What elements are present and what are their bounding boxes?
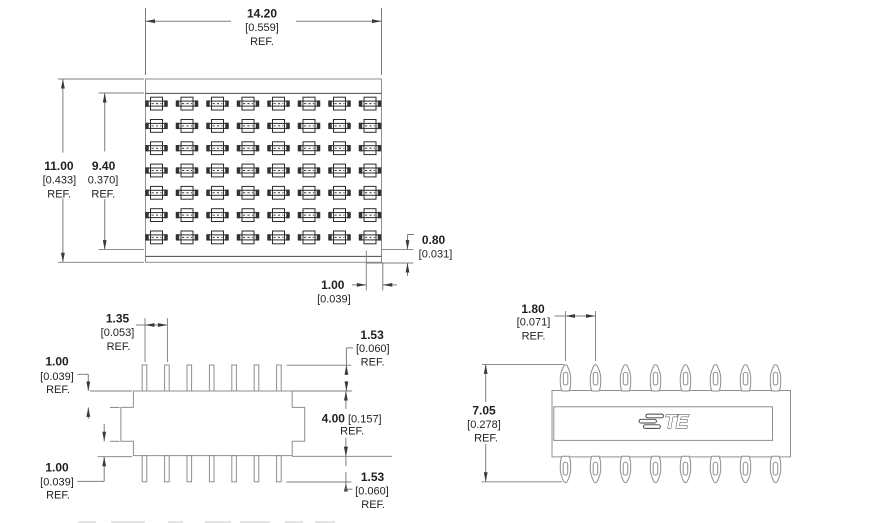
svg-text:[0.278]: [0.278] (467, 419, 501, 431)
svg-text:1.00: 1.00 (321, 278, 345, 292)
svg-text:1.00: 1.00 (45, 355, 69, 369)
svg-text:1.53: 1.53 (360, 328, 384, 342)
svg-text:[0.060]: [0.060] (356, 343, 390, 355)
svg-text:9.40: 9.40 (92, 159, 116, 173)
svg-text:TE: TE (665, 412, 690, 433)
svg-text:REF.: REF. (107, 341, 131, 353)
svg-text:[0.039]: [0.039] (40, 371, 74, 383)
svg-text:[0.031]: [0.031] (419, 248, 453, 260)
svg-text:REF.: REF. (340, 426, 364, 438)
svg-text:4.00 [0.157]: 4.00 [0.157] (322, 411, 382, 425)
svg-text:1.53: 1.53 (361, 470, 385, 484)
svg-text:[0.433]: [0.433] (43, 175, 77, 187)
svg-text:1.00: 1.00 (45, 461, 69, 475)
svg-text:REF.: REF. (46, 384, 70, 396)
svg-text:[0.039]: [0.039] (317, 293, 351, 305)
svg-text:14.20: 14.20 (247, 7, 277, 21)
svg-text:REF.: REF. (361, 499, 385, 511)
svg-text:REF.: REF. (250, 36, 274, 48)
svg-text:REF.: REF. (522, 331, 546, 343)
svg-text:0.370]: 0.370] (88, 175, 119, 187)
svg-text:0.80: 0.80 (422, 233, 446, 247)
svg-text:1.35: 1.35 (106, 312, 130, 326)
svg-text:[0.039]: [0.039] (40, 476, 74, 488)
svg-text:[0.053]: [0.053] (101, 327, 135, 339)
svg-text:[0.060]: [0.060] (355, 486, 389, 498)
svg-text:[0.559]: [0.559] (245, 22, 279, 34)
svg-text:[0.071]: [0.071] (517, 316, 551, 328)
svg-text:1.80: 1.80 (521, 302, 545, 316)
svg-text:11.00: 11.00 (44, 159, 74, 173)
svg-text:REF.: REF. (91, 188, 115, 200)
svg-text:REF.: REF. (361, 357, 385, 369)
svg-text:REF.: REF. (474, 432, 498, 444)
svg-text:REF.: REF. (46, 490, 70, 502)
svg-text:7.05: 7.05 (472, 404, 496, 418)
svg-text:REF.: REF. (47, 188, 71, 200)
